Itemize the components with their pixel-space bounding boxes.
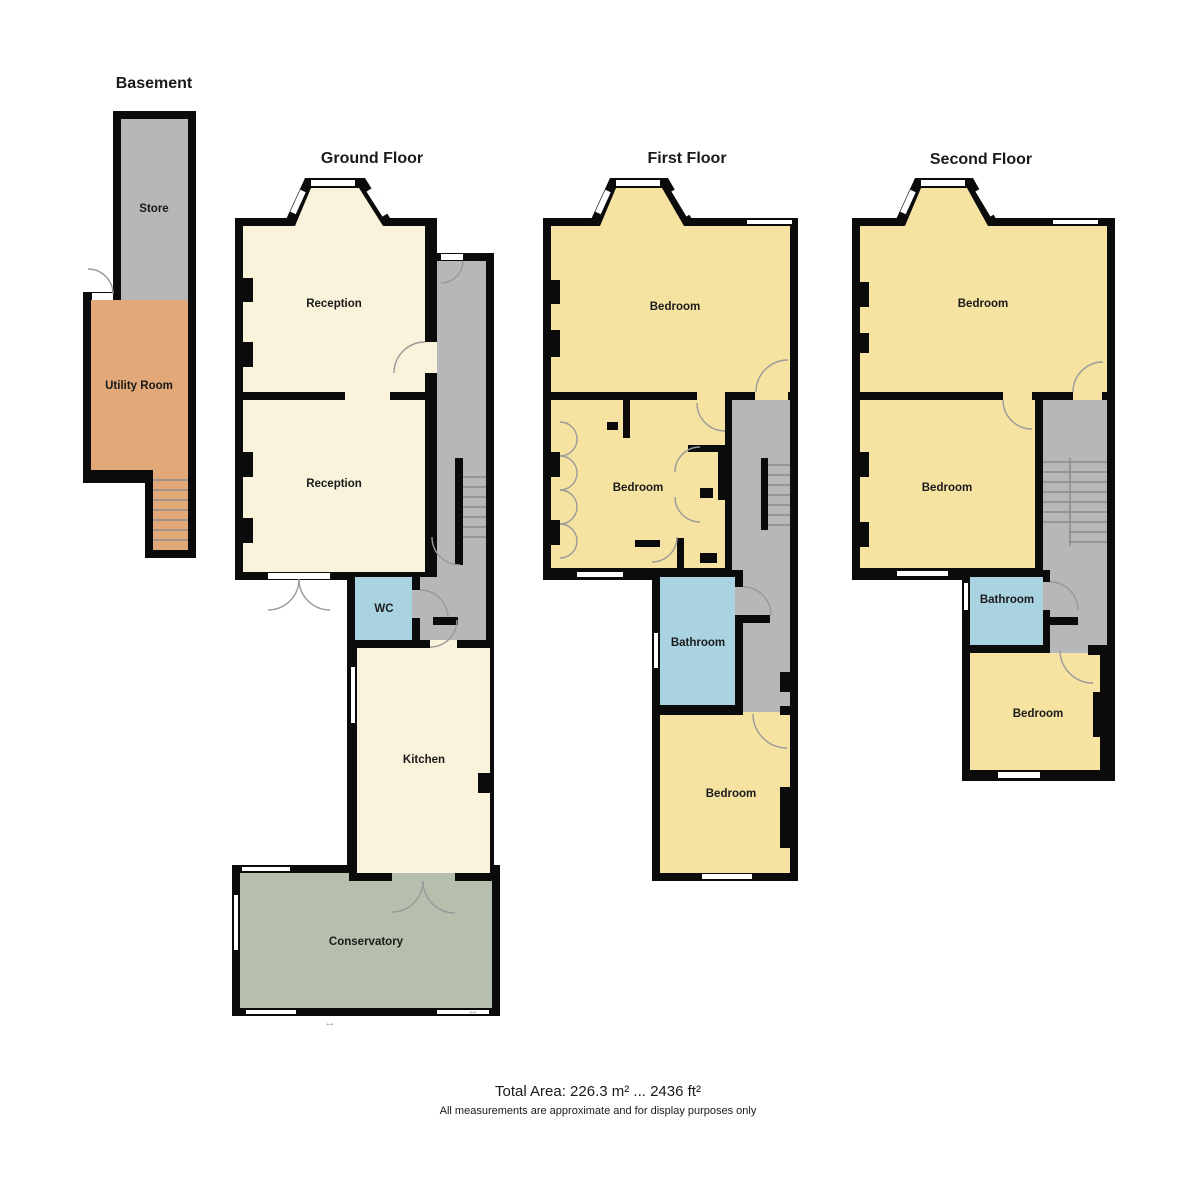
bathroom-f-door-opening (735, 587, 743, 615)
garden-doors-opening (268, 573, 330, 579)
reception1-door-opening (425, 342, 437, 373)
wc-label: WC (374, 603, 393, 615)
bedroom-f2-label: Bedroom (613, 482, 663, 494)
bathroom-f-label: Bathroom (671, 637, 725, 649)
disclaimer-text: All measurements are approximate and for… (440, 1105, 757, 1117)
bathroom-s-label: Bathroom (980, 594, 1034, 606)
reception-divider-opening (345, 392, 390, 400)
second-stairwell-upper (1043, 400, 1107, 570)
first-floor: First Floor (543, 150, 798, 881)
second-floor-title: Second Floor (930, 151, 1032, 168)
total-area-text: Total Area: 226.3 m² ... 2436 ft² (495, 1083, 701, 1100)
first-floor-title: First Floor (647, 150, 726, 167)
slide-marker-2: ↔ (468, 1005, 479, 1017)
bedroom-s3-label: Bedroom (1013, 708, 1063, 720)
bedroom-f2-door-opening (697, 392, 725, 400)
ground-floor: Ground Floor (232, 150, 500, 1029)
basement-door-opening (92, 293, 113, 300)
garden-door-arc-right (299, 579, 330, 610)
room-bathroom-s (970, 577, 1043, 645)
basement-door-arc (88, 269, 113, 294)
bedroom-s2-label: Bedroom (922, 482, 972, 494)
footer: Total Area: 226.3 m² ... 2436 ft² All me… (440, 1083, 757, 1117)
reception2-label: Reception (306, 478, 362, 490)
bedroom-s1-door-opening (1073, 392, 1102, 400)
kitchen-label: Kitchen (403, 754, 445, 766)
reception1-label: Reception (306, 298, 362, 310)
bedroom-f1-label: Bedroom (650, 301, 700, 313)
ground-vestibule (420, 577, 486, 640)
bedroom-s2-door-opening (1003, 392, 1032, 400)
conservatory-label: Conservatory (329, 936, 404, 948)
conservatory-doors-opening (392, 873, 455, 881)
floorplan-page: Basement Store Utility Room Ground Floor (0, 0, 1195, 1200)
second-floor: Second Floor (852, 151, 1115, 781)
slide-marker-1: ↔ (325, 1017, 336, 1029)
basement-title: Basement (116, 75, 193, 92)
ground-floor-title: Ground Floor (321, 150, 423, 167)
bedroom-f3-label: Bedroom (706, 788, 756, 800)
bedroom-s1-label: Bedroom (958, 298, 1008, 310)
bathroom-s-door-opening (1043, 582, 1050, 610)
utility-label: Utility Room (105, 380, 173, 392)
store-label: Store (139, 203, 168, 215)
basement-floor: Basement Store Utility Room (83, 75, 196, 558)
garden-door-arc-left (268, 579, 299, 610)
front-door-opening (441, 254, 463, 260)
floorplan-svg: Basement Store Utility Room Ground Floor (0, 0, 1195, 1200)
bedroom-f1-door-opening (755, 392, 788, 400)
wc-door-opening (412, 590, 420, 618)
